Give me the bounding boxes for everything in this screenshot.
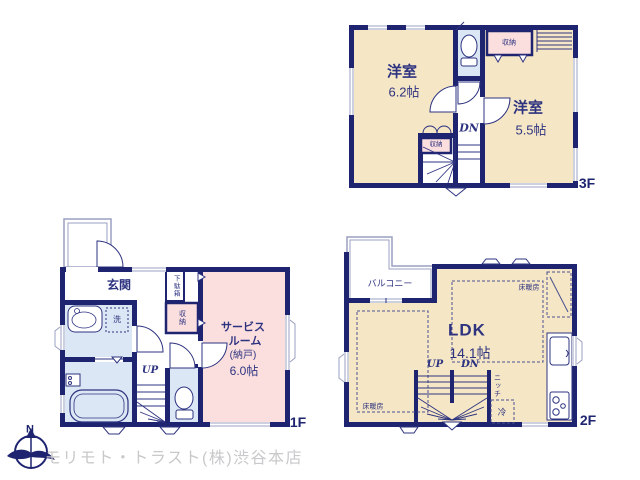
balcony-label: バルコニー xyxy=(368,280,413,289)
stairs-1f xyxy=(137,385,165,422)
room-label-3f-bedroom2: 洋室 xyxy=(513,101,543,116)
stairs-3f-arrow xyxy=(446,188,466,196)
floor-heating-label-right: 床暖房 xyxy=(519,285,540,292)
laundry-label: 洗 xyxy=(113,316,121,324)
service-room-label-1: サービス xyxy=(221,323,265,334)
stairs-dn-label-2f: DN xyxy=(461,360,479,370)
toilet-1f-fixture xyxy=(175,387,193,419)
kitchen-sink xyxy=(550,337,569,365)
service-room-label-3: (納戸) xyxy=(230,351,257,361)
shoe-box-label: 下駄箱 xyxy=(172,275,179,298)
door-1f-washroom xyxy=(137,326,163,352)
floorplan-page: 洋室 6.2帖 洋室 5.5帖 収納 収納 DN 3F バルコニー LDK 14… xyxy=(0,0,640,480)
floorplan-drawing xyxy=(0,0,640,480)
compass-north-label: N xyxy=(26,425,34,436)
room-size-3f-bedroom2: 5.5帖 xyxy=(515,124,546,137)
hatch-strip-3f xyxy=(537,30,572,52)
closet-label-3f-stairs: 収納 xyxy=(430,142,443,149)
room-size-3f-bedroom1: 6.2帖 xyxy=(388,86,419,99)
niche-label: ニッチ xyxy=(494,374,501,398)
stairs-up-label-2f: UP xyxy=(427,360,443,370)
closet-label-1f: 収納 xyxy=(179,310,186,326)
floor-3f xyxy=(349,22,578,196)
floor-tag-2f: 2F xyxy=(580,413,596,427)
stairs-dn-label-3f: DN xyxy=(459,123,479,134)
fridge-label: 冷 xyxy=(498,408,507,417)
floor-tag-1f: 1F xyxy=(290,415,306,429)
room-size-ldk: 14.1帖 xyxy=(449,346,490,360)
floor-heating-label-left: 床暖房 xyxy=(363,404,384,411)
service-room-size: 6.0帖 xyxy=(230,365,259,377)
company-watermark: モリモト・トラスト(株)渋谷本店 xyxy=(45,444,303,468)
room-label-ldk: LDK xyxy=(448,322,486,339)
washstand xyxy=(68,306,102,332)
door-1f-entry xyxy=(97,241,123,267)
room-label-3f-bedroom1: 洋室 xyxy=(387,65,417,80)
door-1f-toilet xyxy=(170,343,195,368)
service-room-label-2: ルーム xyxy=(229,337,262,348)
floor-tag-3f: 3F xyxy=(579,176,595,190)
closet-label-3f-top: 収納 xyxy=(502,40,516,47)
stairs-up-label-1f: UP xyxy=(142,366,158,376)
balcony-railing xyxy=(347,237,434,301)
entrance-label: 玄関 xyxy=(107,279,131,291)
kitchen-stove xyxy=(550,392,569,419)
